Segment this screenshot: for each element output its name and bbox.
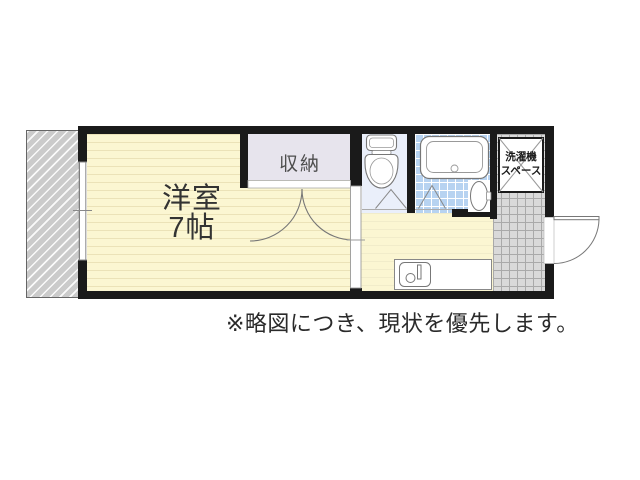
- entrance-door-swing-icon: [544, 217, 599, 264]
- sliding-door-icon: [347, 186, 366, 288]
- main-room-size: 7帖: [87, 214, 297, 243]
- toilet-folding-door-marker: [362, 190, 407, 210]
- washer-label-line1: 洗濯機: [497, 150, 545, 164]
- washer-label-line2: スペース: [497, 164, 545, 178]
- closet-label: 収納: [248, 149, 352, 176]
- bathtub-icon: [421, 137, 489, 179]
- bath-folding-door-marker: [415, 186, 452, 210]
- wash-basin-icon: [468, 180, 491, 212]
- floor-plan-canvas: 洋室 7帖 収納 洗濯機 スペース ※略図につき、現状を優先します。: [0, 0, 640, 480]
- main-room-label: 洋室 7帖: [87, 185, 297, 243]
- washer-space-label: 洗濯機 スペース: [497, 150, 545, 178]
- disclaimer-note: ※略図につき、現状を優先します。: [226, 306, 626, 338]
- toilet-icon: [365, 135, 398, 188]
- kitchen-sink-icon: [395, 260, 492, 290]
- main-room-name: 洋室: [87, 185, 297, 214]
